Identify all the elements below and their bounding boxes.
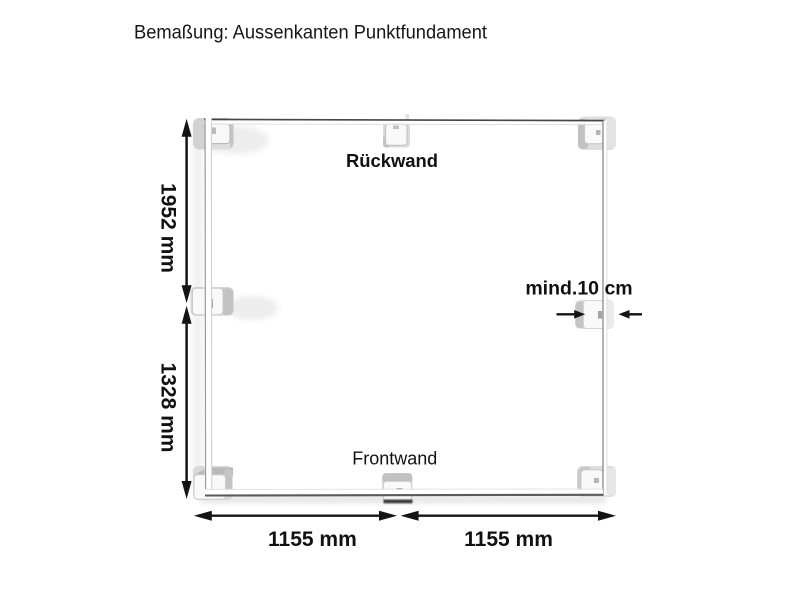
svg-text:Bemaßung: Aussenkanten Punktfu: Bemaßung: Aussenkanten Punktfundament (134, 22, 488, 44)
svg-text:Rückwand: Rückwand (346, 150, 438, 171)
svg-text:1952 mm: 1952 mm (157, 183, 180, 273)
svg-text:Frontwand: Frontwand (352, 449, 437, 469)
svg-text:1155 mm: 1155 mm (268, 528, 357, 551)
svg-text:mind.10 cm: mind.10 cm (525, 277, 632, 299)
svg-text:1155 mm: 1155 mm (464, 528, 553, 551)
svg-text:1328 mm: 1328 mm (157, 363, 180, 453)
